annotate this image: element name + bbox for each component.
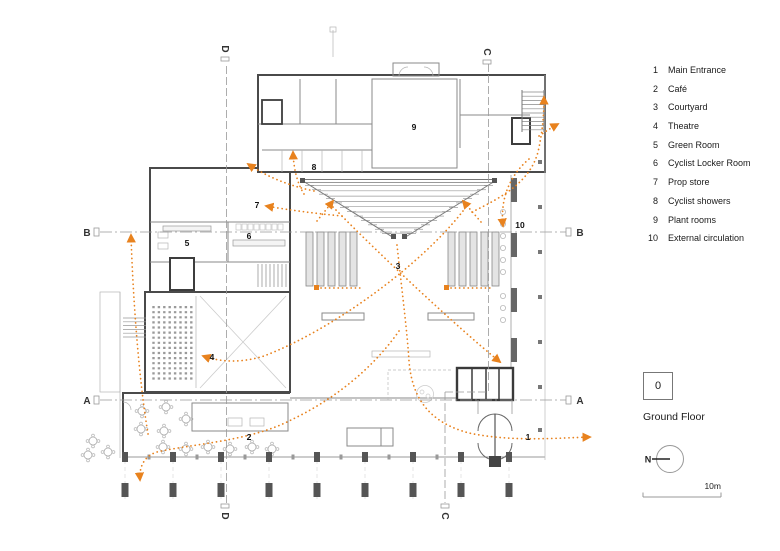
section-marker-c-top: C (481, 48, 492, 55)
legend-label: Courtyard (668, 102, 708, 113)
scale-bar: 10m (643, 481, 721, 497)
west-external-stair (123, 318, 146, 337)
label-prop-store: 7 (255, 200, 260, 210)
legend-item: 9Plant rooms (645, 215, 775, 234)
label-courtyard: 3 (396, 261, 401, 271)
section-marker-b-right: B (576, 228, 583, 239)
north-label: N (645, 455, 652, 465)
locker-row (236, 224, 283, 230)
legend-label: Main Entrance (668, 65, 726, 76)
legend-num: 7 (645, 177, 658, 188)
legend-label: Cyclist showers (668, 196, 731, 207)
legend-num: 8 (645, 196, 658, 207)
label-plant-rooms: 9 (412, 122, 417, 132)
legend-label: External circulation (668, 233, 744, 244)
legend-label: Café (668, 84, 687, 95)
label-external-circulation: 10 (515, 220, 525, 230)
legend-num: 3 (645, 102, 658, 113)
label-main-entrance: 1 (526, 432, 531, 442)
section-marker-a-left: A (83, 396, 90, 407)
legend-label: Prop store (668, 177, 710, 188)
cycle-entry-marker (444, 285, 449, 290)
label-theatre: 4 (210, 352, 215, 362)
cycle-entry-marker (314, 285, 319, 290)
legend-num: 6 (645, 158, 658, 169)
legend-num: 5 (645, 140, 658, 151)
legend-num: 10 (645, 233, 658, 244)
section-marker-d-top: D (219, 45, 230, 52)
label-locker-room: 6 (247, 231, 252, 241)
legend-item: 3Courtyard (645, 102, 775, 121)
legend-item: 1Main Entrance (645, 65, 775, 84)
legend-label: Cyclist Locker Room (668, 158, 751, 169)
legend-label: Plant rooms (668, 215, 716, 226)
label-showers: 8 (312, 162, 317, 172)
outer-column-row (122, 483, 513, 497)
legend-item: 7Prop store (645, 177, 775, 196)
section-marker-a-right: A (576, 396, 583, 407)
legend-num: 9 (645, 215, 658, 226)
ground-floor-plan-sheet: B B A A D C D C (0, 0, 780, 551)
legend-num: 2 (645, 84, 658, 95)
floor-number-badge: 0 (643, 372, 673, 400)
section-marker-c-bottom: C (439, 512, 450, 519)
legend-item: 4Theatre (645, 121, 775, 140)
legend-label: Green Room (668, 140, 720, 151)
legend-item: 8Cyclist showers (645, 196, 775, 215)
north-arrow: N (645, 446, 684, 473)
legend-item: 10External circulation (645, 233, 775, 252)
legend-num: 1 (645, 65, 658, 76)
section-marker-d-bottom: D (219, 512, 230, 519)
section-marker-b-left: B (83, 228, 90, 239)
legend-item: 2Café (645, 84, 775, 103)
courtyard-stepped-seating (300, 178, 497, 239)
backstage-stair (258, 264, 286, 287)
legend-num: 4 (645, 121, 658, 132)
legend-item: 5Green Room (645, 140, 775, 159)
legend: 1Main Entrance 2Café 3Courtyard 4Theatre… (645, 65, 775, 252)
label-cafe: 2 (247, 432, 252, 442)
label-green-room: 5 (185, 238, 190, 248)
cycle-racks (306, 232, 499, 286)
floor-name: Ground Floor (643, 411, 705, 423)
floor-number: 0 (655, 380, 661, 392)
legend-item: 6Cyclist Locker Room (645, 158, 775, 177)
legend-label: Theatre (668, 121, 699, 132)
scale-label: 10m (704, 481, 721, 491)
